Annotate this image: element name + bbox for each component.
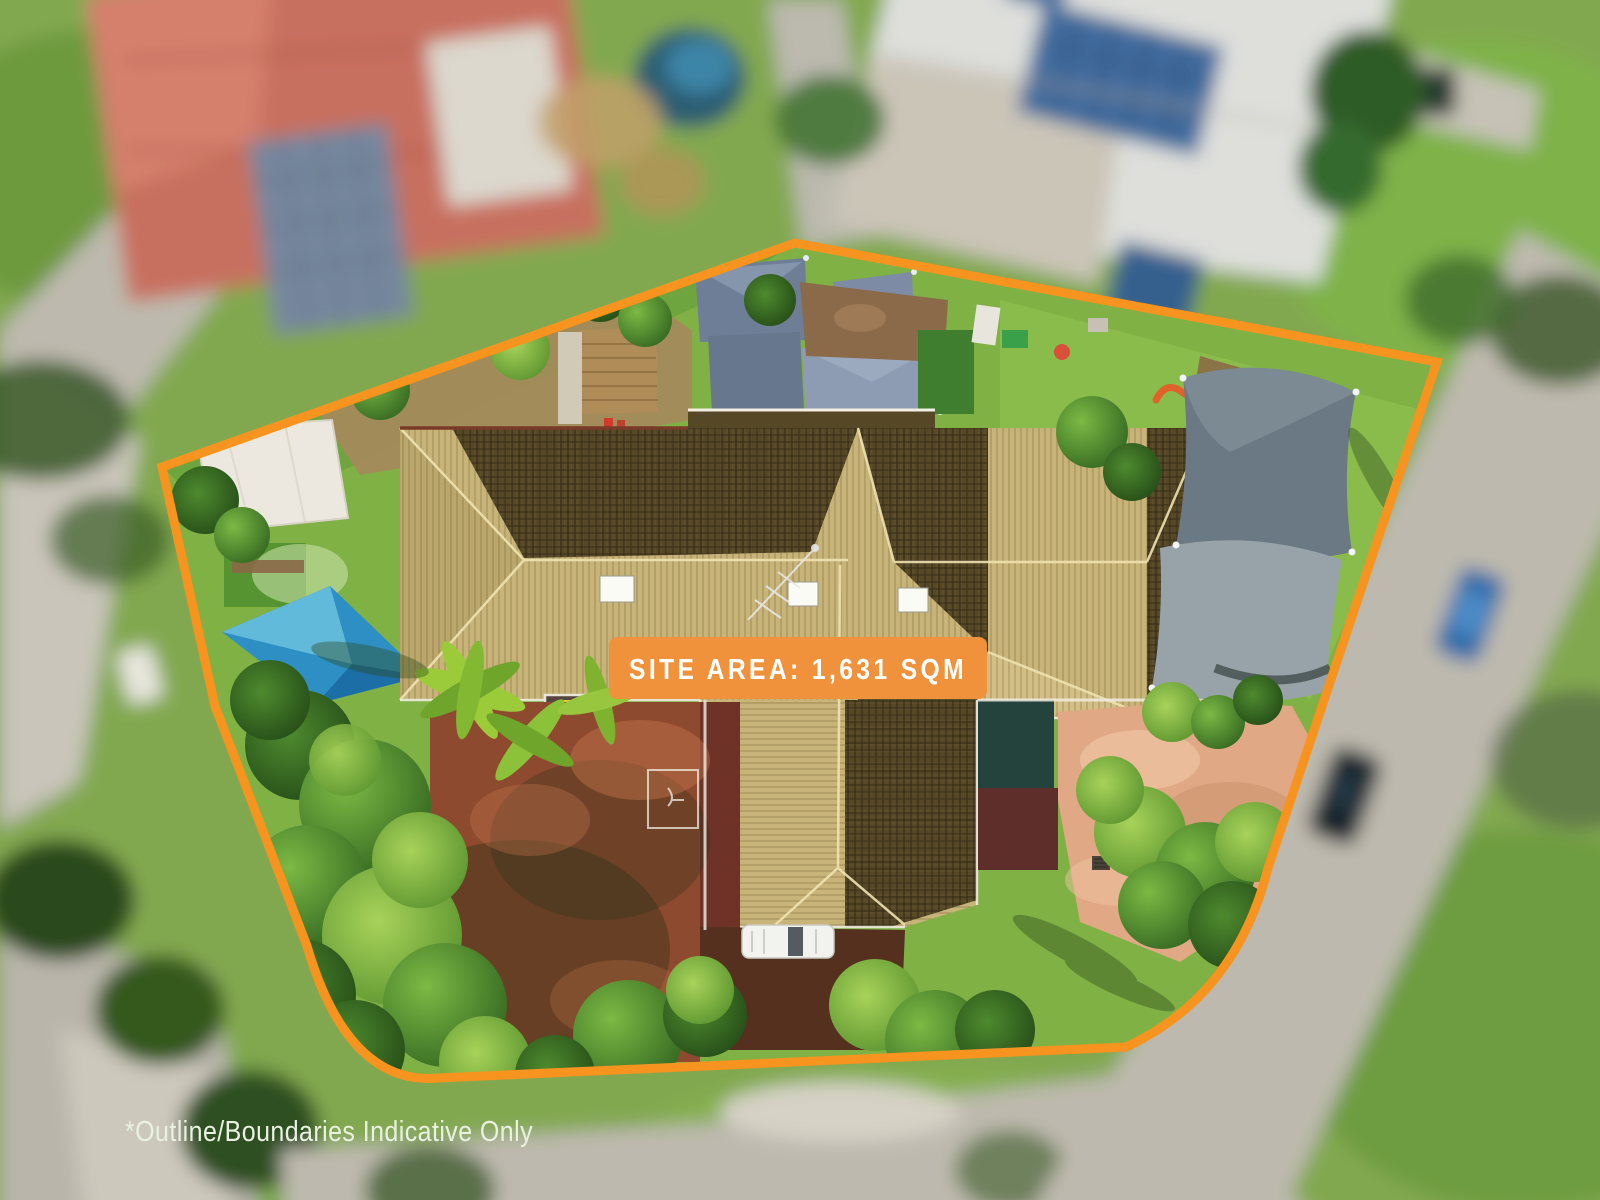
skylight xyxy=(898,588,928,612)
site-area-badge-text: SITE AREA: 1,631 SQM xyxy=(629,654,967,686)
white-car xyxy=(742,925,834,958)
roof-gable-strip xyxy=(688,410,935,428)
skylight xyxy=(788,582,818,606)
site-area-badge: SITE AREA: 1,631 SQM xyxy=(609,637,987,699)
dark-turf xyxy=(918,330,974,414)
aerial-photo: SITE AREA: 1,631 SQM *Outline/Boundaries… xyxy=(0,0,1600,1200)
path-strip xyxy=(558,332,582,424)
boundaries-disclaimer: *Outline/Boundaries Indicative Only xyxy=(125,1116,533,1148)
car-windshield xyxy=(788,927,803,956)
skylight xyxy=(600,576,634,602)
